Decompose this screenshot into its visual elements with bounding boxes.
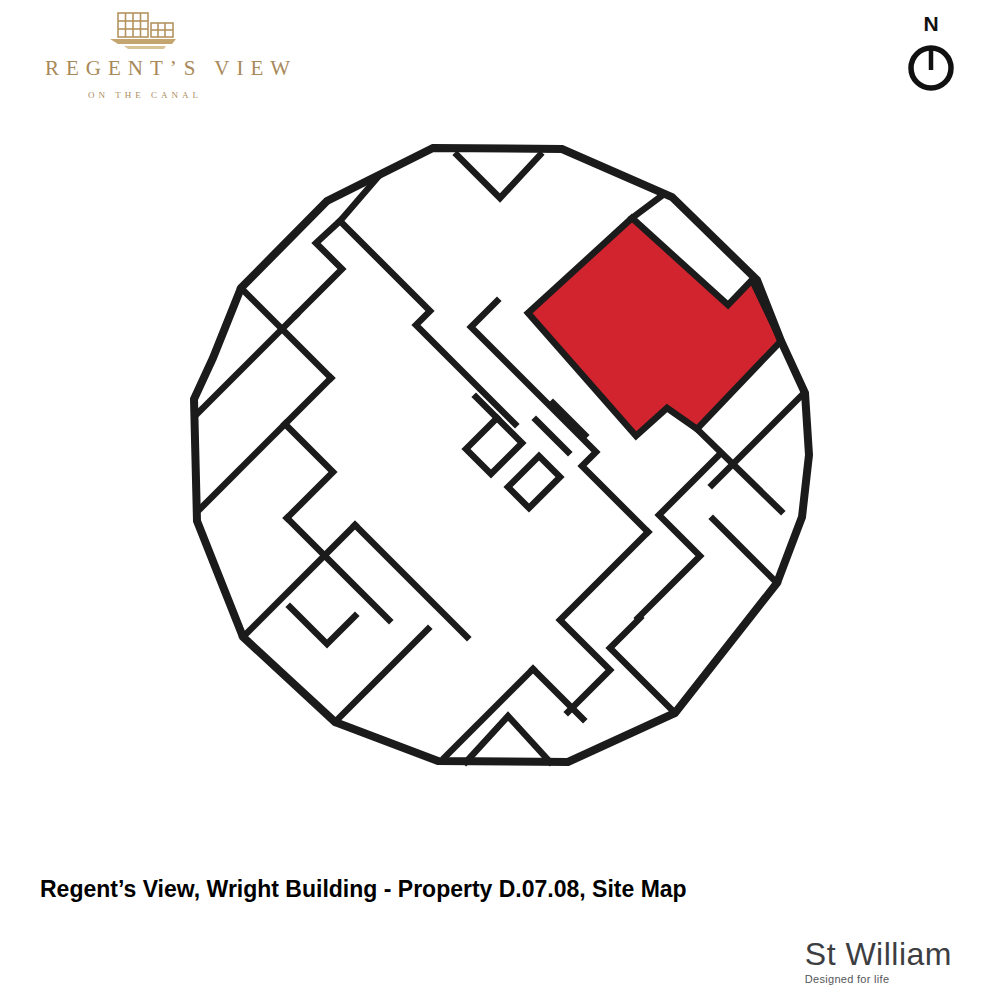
wall-line bbox=[241, 288, 331, 378]
wall-line bbox=[335, 629, 428, 722]
wall-line bbox=[445, 669, 533, 757]
wall-line bbox=[638, 453, 721, 618]
wall-line bbox=[536, 420, 568, 452]
wall-line bbox=[287, 518, 389, 620]
wall-line bbox=[340, 221, 515, 424]
wall-line bbox=[713, 519, 777, 583]
wall-line bbox=[457, 155, 540, 198]
wall-line bbox=[285, 378, 333, 518]
wall-line bbox=[553, 403, 585, 435]
highlighted-unit[interactable] bbox=[528, 218, 781, 436]
wall-line bbox=[508, 456, 560, 508]
developer-tagline: Designed for life bbox=[805, 973, 952, 985]
wall-line bbox=[610, 618, 675, 713]
page: { "brand": { "name": "REGENT’S VIEW", "t… bbox=[0, 0, 1000, 1000]
developer-name: St William bbox=[805, 938, 952, 970]
wall-line bbox=[533, 669, 583, 719]
wall-line bbox=[712, 393, 804, 485]
wall-line bbox=[355, 525, 467, 637]
developer-logo: St William Designed for life bbox=[805, 938, 952, 985]
site-map bbox=[0, 0, 1000, 1000]
wall-line bbox=[697, 429, 781, 511]
wall-line bbox=[200, 424, 285, 509]
wall-line bbox=[632, 197, 660, 218]
map-caption: Regent’s View, Wright Building - Propert… bbox=[40, 876, 687, 903]
wall-line bbox=[290, 607, 355, 644]
site-map-svg bbox=[0, 0, 1000, 1000]
